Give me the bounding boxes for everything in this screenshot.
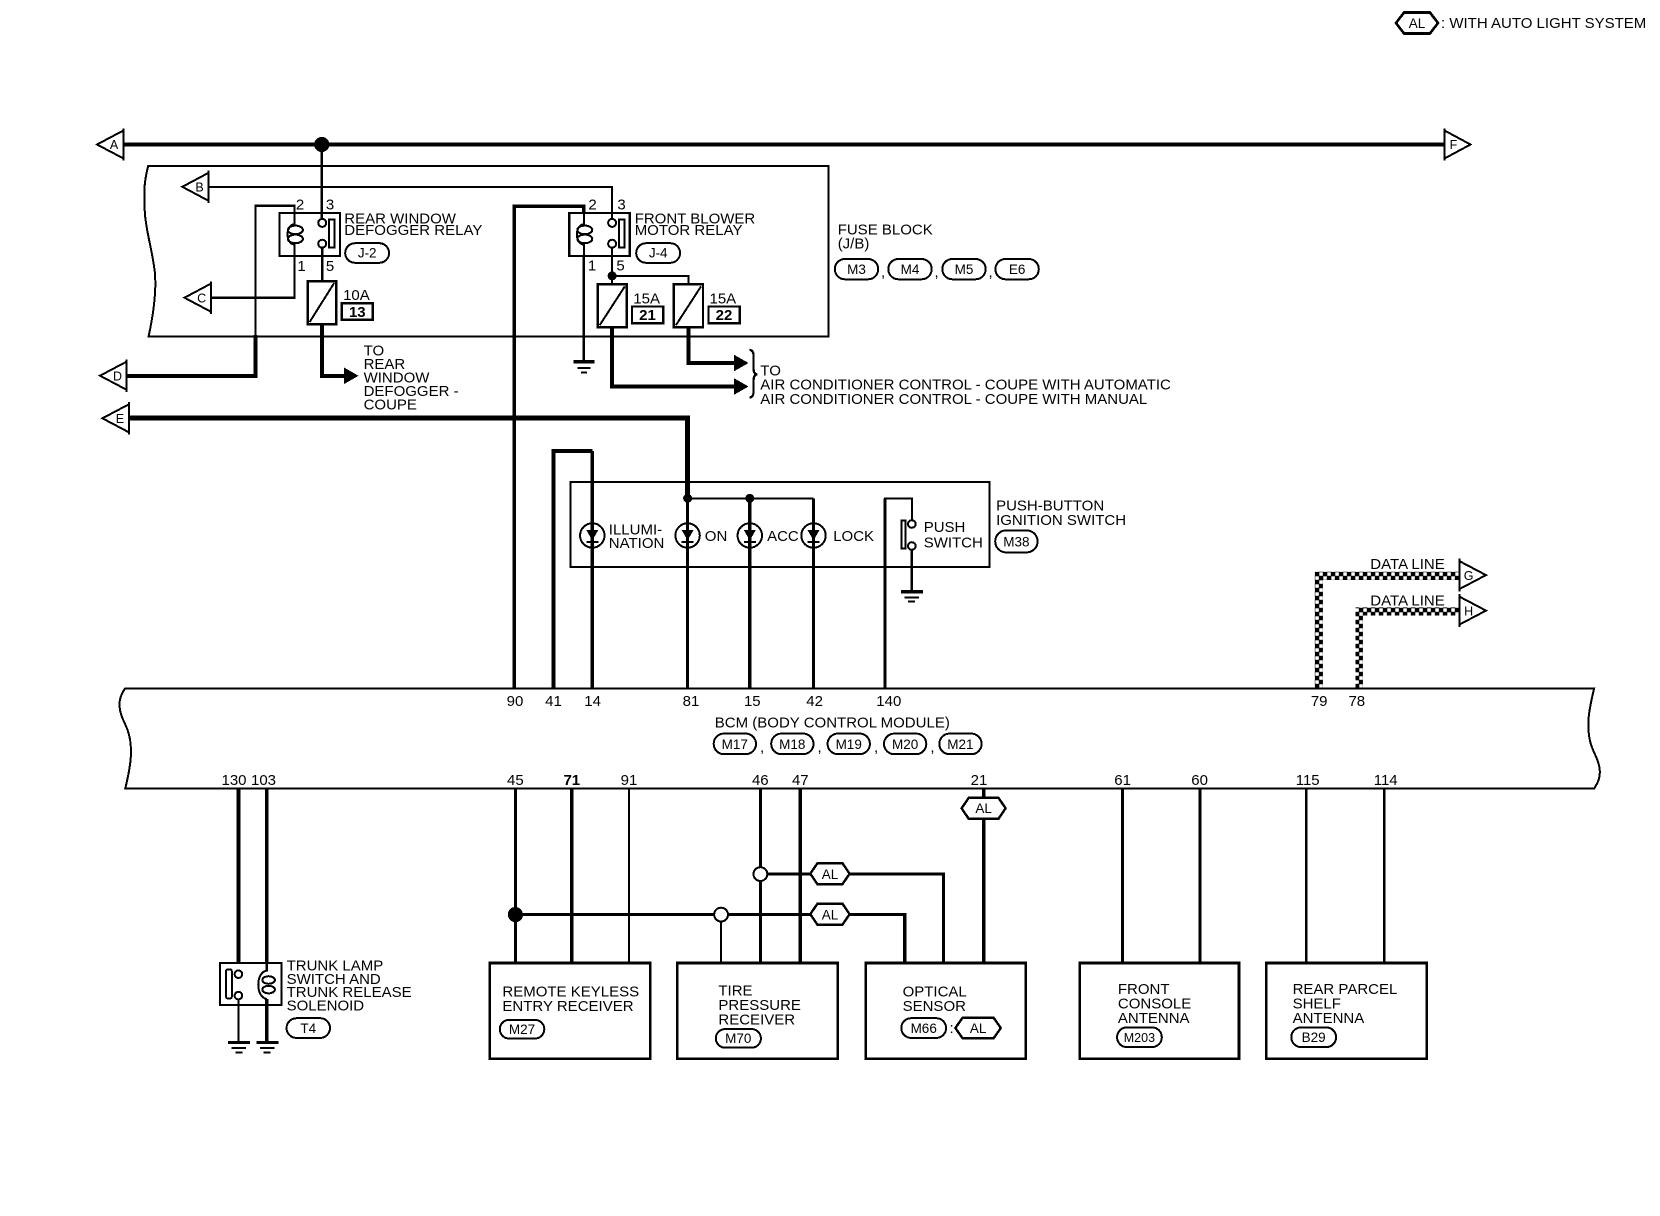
svg-text:140: 140 <box>876 693 901 710</box>
svg-text:M3: M3 <box>847 262 866 277</box>
svg-text:,: , <box>935 264 939 281</box>
svg-text:M17: M17 <box>722 737 748 752</box>
svg-text:78: 78 <box>1348 693 1365 710</box>
svg-text:M203: M203 <box>1124 1031 1155 1045</box>
svg-text:79: 79 <box>1311 693 1328 710</box>
svg-text:13: 13 <box>349 304 366 321</box>
svg-text:M21: M21 <box>947 737 973 752</box>
svg-text:SENSOR: SENSOR <box>903 998 967 1015</box>
svg-text:C: C <box>197 291 206 305</box>
svg-text:91: 91 <box>621 772 638 789</box>
svg-text::: : <box>950 1020 954 1037</box>
svg-text:,: , <box>881 264 885 281</box>
svg-text:10A: 10A <box>343 287 370 304</box>
svg-text:130: 130 <box>221 772 246 789</box>
svg-text:BCM (BODY CONTROL MODULE): BCM (BODY CONTROL MODULE) <box>715 714 950 731</box>
svg-text:M66: M66 <box>911 1021 937 1036</box>
svg-text:MOTOR RELAY: MOTOR RELAY <box>635 222 743 239</box>
svg-text:AL: AL <box>1409 16 1426 31</box>
svg-text:DATA LINE: DATA LINE <box>1370 593 1444 610</box>
svg-text:114: 114 <box>1374 772 1398 789</box>
svg-text:T4: T4 <box>300 1021 316 1036</box>
svg-text:M20: M20 <box>892 737 918 752</box>
svg-text:COUPE: COUPE <box>364 396 417 413</box>
svg-text:LOCK: LOCK <box>833 528 874 545</box>
svg-text:J-2: J-2 <box>358 246 377 261</box>
svg-text:D: D <box>113 369 122 383</box>
svg-text:NATION: NATION <box>609 535 665 552</box>
svg-text:22: 22 <box>716 307 733 324</box>
svg-text:M4: M4 <box>901 262 920 277</box>
svg-text:SWITCH: SWITCH <box>924 534 983 551</box>
svg-text:21: 21 <box>971 772 988 789</box>
svg-text:5: 5 <box>616 258 624 275</box>
svg-text:E6: E6 <box>1009 262 1026 277</box>
svg-text:,: , <box>818 739 822 756</box>
svg-text:,: , <box>930 739 934 756</box>
svg-text:3: 3 <box>617 197 625 214</box>
svg-text:2: 2 <box>296 197 304 214</box>
svg-text:PUSH: PUSH <box>924 519 966 536</box>
svg-text:AL: AL <box>822 867 839 882</box>
svg-text:AIR CONDITIONER CONTROL - COUP: AIR CONDITIONER CONTROL - COUPE WITH MAN… <box>760 391 1147 408</box>
svg-text:M5: M5 <box>955 262 974 277</box>
svg-text:1: 1 <box>588 258 596 275</box>
svg-text:,: , <box>989 264 993 281</box>
svg-text:60: 60 <box>1191 772 1208 789</box>
svg-text:AL: AL <box>970 1021 987 1036</box>
svg-text:B: B <box>195 181 203 195</box>
svg-text:,: , <box>874 739 878 756</box>
svg-text:M19: M19 <box>836 737 862 752</box>
svg-text:M38: M38 <box>1003 534 1029 549</box>
svg-text:G: G <box>1464 569 1474 583</box>
svg-text:15A: 15A <box>710 291 737 308</box>
svg-text:15A: 15A <box>633 291 660 308</box>
svg-text:47: 47 <box>792 772 809 789</box>
svg-text:ACC: ACC <box>767 528 799 545</box>
svg-text:41: 41 <box>545 693 562 710</box>
svg-text:103: 103 <box>251 772 276 789</box>
svg-text:61: 61 <box>1114 772 1131 789</box>
svg-text:B29: B29 <box>1302 1030 1326 1045</box>
svg-text:M27: M27 <box>509 1022 535 1037</box>
svg-text:21: 21 <box>639 307 656 324</box>
svg-text:5: 5 <box>326 258 334 275</box>
svg-text:ON: ON <box>705 528 728 545</box>
svg-text:(J/B): (J/B) <box>838 236 870 253</box>
svg-text:15: 15 <box>744 693 761 710</box>
svg-text:81: 81 <box>683 693 700 710</box>
svg-text:1: 1 <box>297 258 305 275</box>
svg-text:J-4: J-4 <box>649 246 668 261</box>
svg-text:71: 71 <box>563 772 580 789</box>
svg-text:IGNITION SWITCH: IGNITION SWITCH <box>996 512 1126 529</box>
svg-text:: WITH AUTO LIGHT SYSTEM: : WITH AUTO LIGHT SYSTEM <box>1441 15 1646 32</box>
svg-text:DEFOGGER RELAY: DEFOGGER RELAY <box>344 222 482 239</box>
svg-text:ANTENNA: ANTENNA <box>1118 1010 1190 1027</box>
svg-text:E: E <box>116 412 124 426</box>
svg-text:90: 90 <box>507 693 524 710</box>
svg-text:DATA LINE: DATA LINE <box>1370 556 1444 573</box>
svg-text:ANTENNA: ANTENNA <box>1293 1010 1365 1027</box>
svg-text:M18: M18 <box>779 737 805 752</box>
svg-text:A: A <box>110 138 119 152</box>
svg-text:RECEIVER: RECEIVER <box>718 1011 795 1028</box>
svg-text:AL: AL <box>975 801 992 816</box>
svg-text:46: 46 <box>752 772 769 789</box>
svg-text:H: H <box>1464 604 1473 618</box>
svg-text:AL: AL <box>822 907 839 922</box>
svg-text:F: F <box>1450 138 1458 152</box>
svg-text:M70: M70 <box>725 1031 751 1046</box>
svg-text:ENTRY RECEIVER: ENTRY RECEIVER <box>502 998 633 1015</box>
svg-text:14: 14 <box>584 693 601 710</box>
svg-text:45: 45 <box>507 772 524 789</box>
svg-text:3: 3 <box>326 197 334 214</box>
svg-text:2: 2 <box>588 197 596 214</box>
svg-text:42: 42 <box>806 693 823 710</box>
svg-text:115: 115 <box>1296 772 1320 789</box>
svg-text:SOLENOID: SOLENOID <box>287 998 365 1015</box>
svg-text:,: , <box>760 739 764 756</box>
